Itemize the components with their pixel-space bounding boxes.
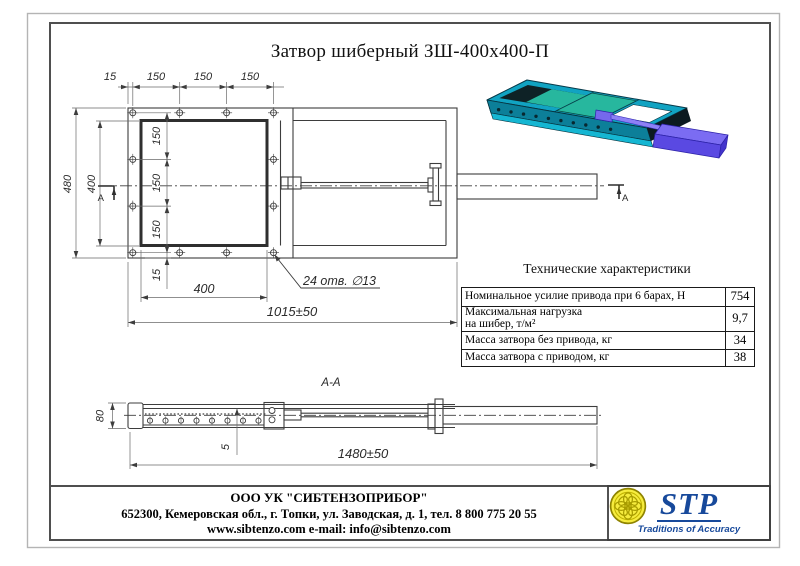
dim-opening-width: 400	[194, 282, 215, 296]
tech-row-value: 38	[726, 350, 754, 367]
section-bolts	[147, 408, 275, 425]
drawing-sheet: А А 15 150 150 150 480 400 150 150 150 1…	[0, 0, 800, 566]
stp-logo-tagline: Traditions of Accuracy	[638, 524, 740, 535]
table-row: Номинальное усилие привода при 6 барах, …	[462, 288, 754, 306]
stp-logo-text: STP	[657, 491, 721, 522]
section-mark-left: А	[98, 193, 105, 204]
dim-top-3: 150	[241, 71, 260, 83]
render-actuator	[653, 124, 728, 158]
dim-left-outer: 480	[62, 174, 74, 193]
dim-top-1: 150	[147, 71, 166, 83]
dim-side-2: 150	[151, 173, 163, 192]
dim-top-offset: 15	[104, 71, 117, 83]
dim-side-1: 150	[151, 126, 163, 145]
section-view: А-А	[95, 377, 605, 469]
dim-side-3: 150	[151, 219, 163, 238]
section-label: А-А	[320, 377, 341, 389]
stp-logo-text-group: STP Traditions of Accuracy	[638, 491, 740, 535]
tech-table: Номинальное усилие привода при 6 барах, …	[461, 287, 755, 367]
section-body	[128, 399, 597, 434]
tech-row-label: Максимальная нагрузкана шибер, т/м²	[462, 307, 726, 332]
sheet-borders	[28, 14, 780, 548]
table-row: Масса затвора с приводом, кг 38	[462, 349, 754, 367]
dim-section-plate: 5	[220, 443, 232, 450]
table-row: Максимальная нагрузкана шибер, т/м² 9,7	[462, 306, 754, 332]
section-mark-right: А	[622, 193, 629, 204]
front-body	[128, 108, 597, 258]
render-3d	[487, 80, 728, 158]
footer-address: 652300, Кемеровская обл., г. Топки, ул. …	[121, 506, 536, 522]
drawing-svg: А А 15 150 150 150 480 400 150 150 150 1…	[0, 0, 800, 566]
stp-logo: STP Traditions of Accuracy	[608, 486, 770, 540]
footer-contacts: www.sibtenzo.com e-mail: info@sibtenzo.c…	[207, 522, 451, 537]
dim-left-inner: 400	[86, 174, 98, 193]
tech-row-value: 754	[726, 288, 754, 306]
dim-overall-length: 1015±50	[267, 304, 318, 319]
footer-block: ООО УК "СИБТЕНЗОПРИБОР" 652300, Кемеровс…	[50, 487, 608, 539]
tech-table-title: Технические характеристики	[461, 261, 753, 277]
dim-section-length: 1480±50	[338, 446, 389, 461]
tech-row-label: Масса затвора без привода, кг	[462, 332, 726, 349]
tech-row-label: Номинальное усилие привода при 6 барах, …	[462, 288, 726, 306]
page-title: Затвор шиберный ЗШ-400х400-П	[50, 41, 770, 63]
stp-emblem-icon	[608, 486, 648, 526]
tech-row-value: 9,7	[726, 307, 754, 332]
dim-section-height: 80	[95, 409, 107, 422]
table-row: Масса затвора без привода, кг 34	[462, 331, 754, 349]
tech-row-label: Масса затвора с приводом, кг	[462, 350, 726, 367]
dim-top-2: 150	[194, 71, 213, 83]
footer-company: ООО УК "СИБТЕНЗОПРИБОР"	[230, 490, 427, 506]
dim-bottom-offset: 15	[151, 268, 163, 281]
tech-row-value: 34	[726, 332, 754, 349]
holes-note: 24 отв. ∅13	[302, 274, 376, 288]
